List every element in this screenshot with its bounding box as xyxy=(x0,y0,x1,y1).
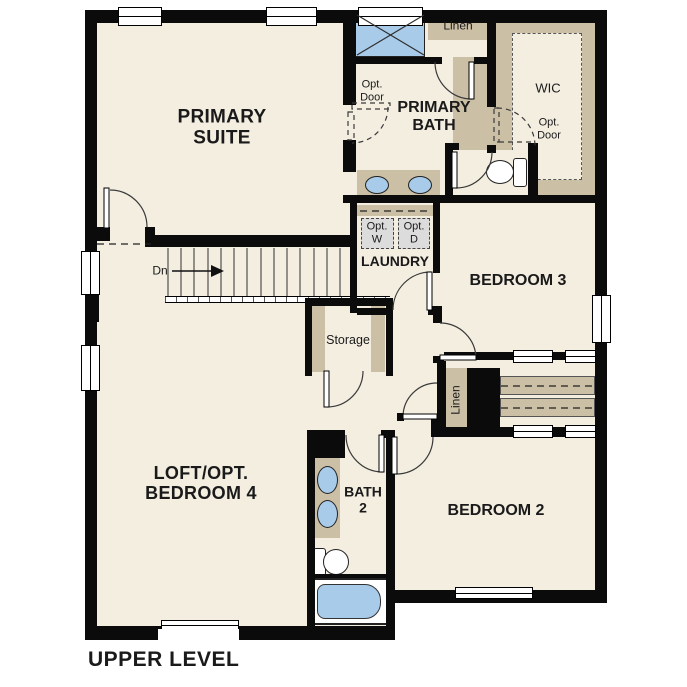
wall-bath2-door-jamb xyxy=(381,430,387,438)
wall-hall-door-stub xyxy=(397,413,404,421)
wall-wc-north-stub xyxy=(445,143,459,150)
room-label-bedroom2: BEDROOM 2 xyxy=(448,502,545,520)
window-top-2 xyxy=(266,7,317,26)
wall-bath2-west xyxy=(307,430,315,626)
room-label-primary-bath: PRIMARY BATH xyxy=(389,99,479,135)
wall-hall-se-corner xyxy=(431,418,444,437)
room-label-loft: LOFT/OPT. BEDROOM 4 xyxy=(139,463,264,503)
wall-suite-door-stub-right xyxy=(145,227,155,247)
wall-closet-north-a xyxy=(444,352,514,360)
wall-wic-west-stub xyxy=(487,145,496,153)
wall-bath2-east xyxy=(386,430,395,626)
wall-linen-stub-left xyxy=(428,57,442,64)
primary-toilet-tank xyxy=(513,158,527,187)
closet-shelf-bottom xyxy=(500,398,595,417)
wall-closet-divider xyxy=(467,368,500,433)
label-opt-dryer: Opt. D xyxy=(402,220,426,245)
primary-sink-left xyxy=(365,176,389,194)
wall-suite-south xyxy=(153,235,356,247)
window-bottom-loft-opening xyxy=(158,629,239,641)
room-label-laundry: LAUNDRY xyxy=(361,254,429,270)
primary-sink-right xyxy=(408,176,432,194)
wall-wc-east xyxy=(528,143,538,201)
closet3-slider-1 xyxy=(513,350,553,363)
label-linen-mid: Linen xyxy=(449,385,462,414)
storage-jamb-right xyxy=(371,306,385,372)
laundry-counter xyxy=(357,205,433,216)
wall-bottom-loft xyxy=(85,626,395,640)
wall-closet-south-a xyxy=(444,427,514,437)
room-label-primary-suite: PRIMARY SUITE xyxy=(170,107,275,150)
wall-left xyxy=(85,10,97,640)
wall-linen-stub-right xyxy=(474,57,487,64)
window-right-bedroom3 xyxy=(592,295,611,343)
wall-wic-west-upper xyxy=(487,10,496,107)
bathtub xyxy=(317,584,381,619)
wall-shower-bottom xyxy=(343,57,428,64)
label-stairs-down: Dn xyxy=(152,264,167,277)
window-top-3 xyxy=(358,7,423,26)
plan-title: UPPER LEVEL xyxy=(88,648,239,672)
wall-suite-bath-lower xyxy=(343,140,356,172)
wall-mid-horizontal xyxy=(343,195,595,203)
label-linen-top: Linen xyxy=(443,19,472,32)
wall-storage-west xyxy=(305,306,312,376)
wall-laundry-west xyxy=(350,203,357,313)
bath2-toilet-bowl xyxy=(323,549,349,575)
wall-storage-east xyxy=(386,306,393,376)
closet2-slider-1 xyxy=(513,425,553,438)
primary-toilet-bowl xyxy=(486,160,514,184)
window-bottom-bedroom2 xyxy=(455,587,533,599)
window-left-1 xyxy=(81,251,100,295)
wall-hall-east-a xyxy=(433,306,442,323)
closet3-slider-2 xyxy=(565,350,596,363)
wall-storage-north xyxy=(305,298,393,306)
wall-left-pier xyxy=(85,292,99,322)
label-opt-washer: Opt. W xyxy=(365,220,389,245)
closet2-slider-2 xyxy=(565,425,596,438)
storage-jamb-left xyxy=(311,306,325,372)
room-label-bedroom3: BEDROOM 3 xyxy=(470,272,567,290)
label-storage: Storage xyxy=(326,333,370,347)
floor-plan: PRIMARY SUITE PRIMARY BATH WIC LAUNDRY B… xyxy=(0,0,687,687)
wall-suite-door-stub-left xyxy=(93,227,110,241)
room-label-wic: WIC xyxy=(535,82,560,97)
window-left-2 xyxy=(81,345,100,391)
wall-bath2-tub-divider xyxy=(311,574,387,578)
linen-closet-top-floor xyxy=(428,40,487,57)
window-top-1 xyxy=(118,7,162,26)
wall-wc-west xyxy=(445,143,453,203)
wall-laundry-east xyxy=(433,203,440,273)
closet-shelf-top xyxy=(500,376,595,395)
room-label-bath2: BATH 2 xyxy=(340,484,386,515)
bath2-sink-bottom xyxy=(317,500,338,528)
bath2-sink-top xyxy=(317,466,338,494)
label-opt-door-bath: Opt. Door xyxy=(356,78,388,103)
label-opt-door-wic: Opt. Door xyxy=(533,116,565,141)
